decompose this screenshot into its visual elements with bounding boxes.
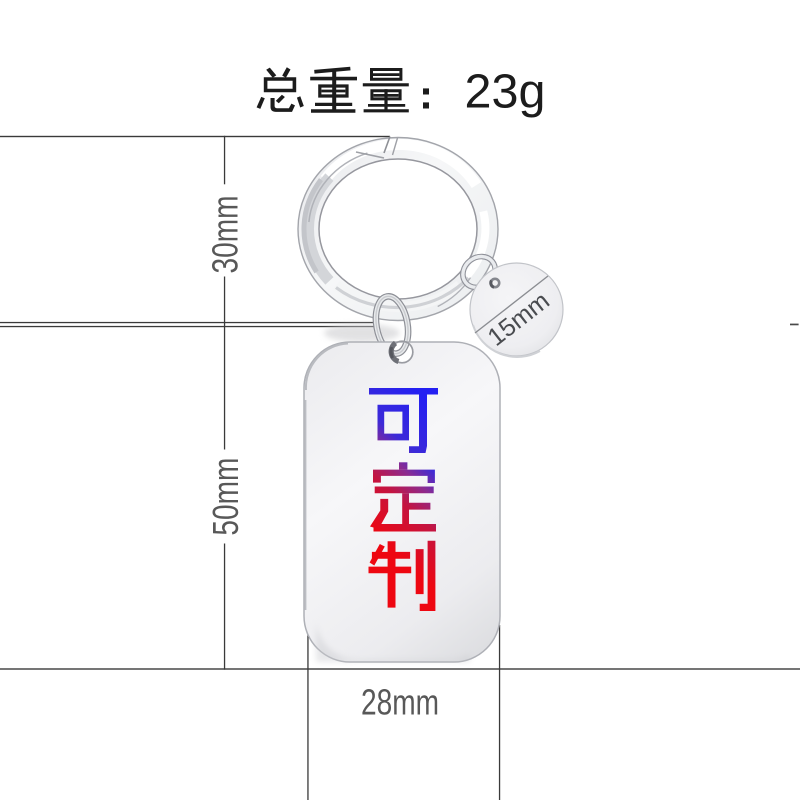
svg-text:23g: 23g xyxy=(465,65,546,119)
svg-text:30mm: 30mm xyxy=(205,196,246,274)
svg-text:50mm: 50mm xyxy=(205,458,246,536)
svg-text:28mm: 28mm xyxy=(361,682,439,723)
